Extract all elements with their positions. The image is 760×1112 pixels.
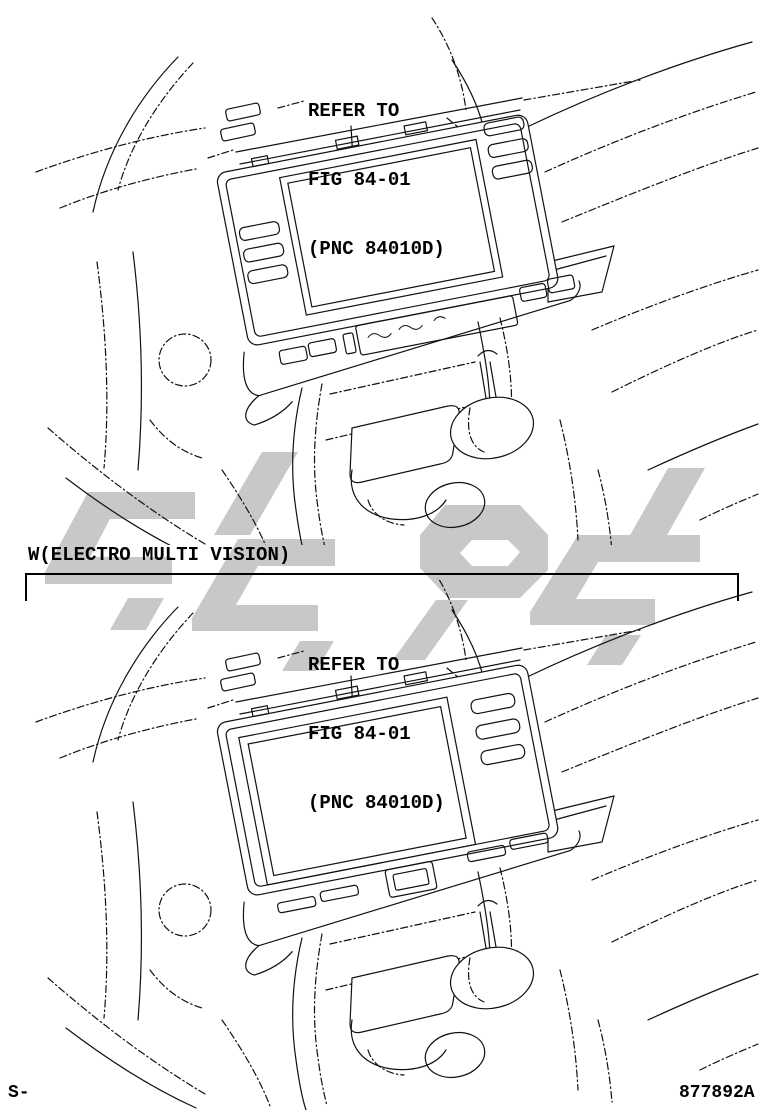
- panel-standard-illustration: REFER TO FIG 84-01 (PNC 84010D): [0, 0, 760, 545]
- refer-to-callout-top: REFER TO FIG 84-01 (PNC 84010D): [308, 54, 445, 307]
- callout-line-2: FIG 84-01: [308, 169, 445, 192]
- divider-rule: [25, 573, 739, 575]
- callout-line-3: (PNC 84010D): [308, 792, 445, 815]
- callout-line-2: FIG 84-01: [308, 723, 445, 746]
- refer-to-callout-bottom: REFER TO FIG 84-01 (PNC 84010D): [308, 608, 445, 861]
- page-code-left: S-: [8, 1083, 30, 1103]
- callout-line-1: REFER TO: [308, 100, 445, 123]
- divider-variant-label: W(ELECTRO MULTI VISION): [28, 544, 290, 566]
- divider-rule-left-tick: [25, 573, 27, 601]
- callout-line-3: (PNC 84010D): [308, 238, 445, 261]
- parts-catalog-page: REFER TO FIG 84-01 (PNC 84010D) W(ELECTR…: [0, 0, 760, 1112]
- divider-rule-right-tick: [737, 573, 739, 601]
- callout-line-1: REFER TO: [308, 654, 445, 677]
- figure-code: 877892A: [679, 1083, 755, 1103]
- panel-emv-illustration: REFER TO FIG 84-01 (PNC 84010D): [0, 578, 760, 1112]
